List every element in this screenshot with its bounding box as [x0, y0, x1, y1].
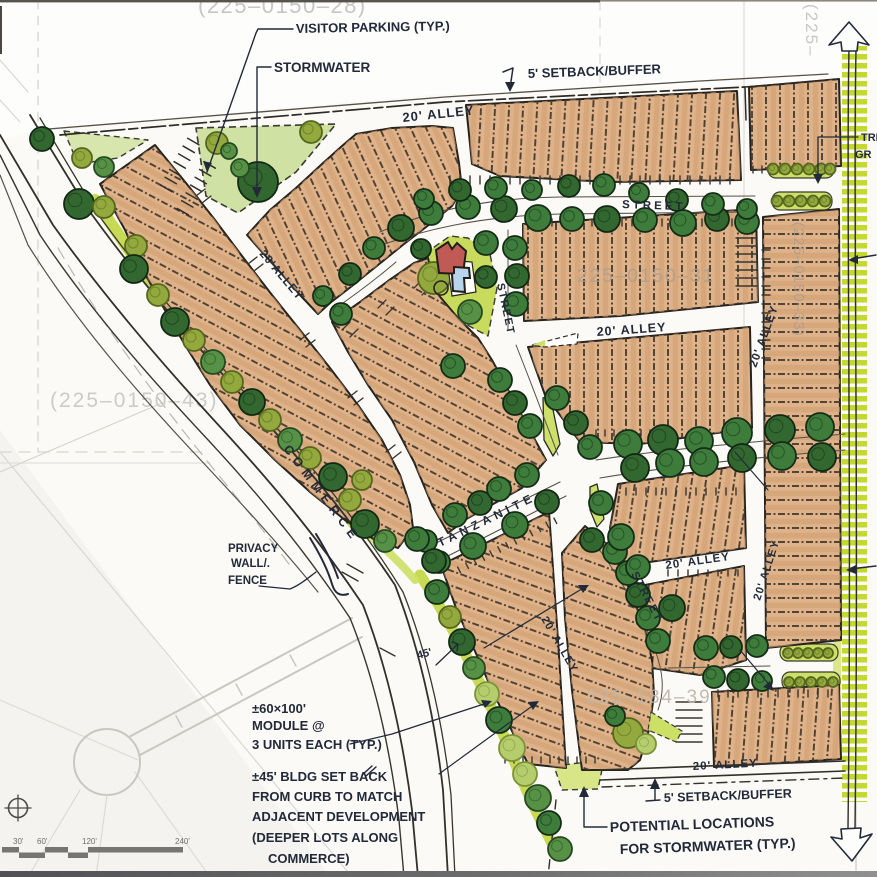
svg-text:120': 120'	[82, 837, 97, 846]
svg-text:(DEEPER LOTS ALONG: (DEEPER LOTS ALONG	[252, 830, 398, 845]
svg-text:WALL/.: WALL/.	[231, 558, 270, 570]
svg-text:(225–0150–33): (225–0150–33)	[790, 222, 807, 337]
svg-text:±45' BLDG SET BACK: ±45' BLDG SET BACK	[252, 769, 388, 784]
svg-text:(225–0150–43): (225–0150–43)	[50, 389, 218, 412]
svg-text:60': 60'	[37, 837, 48, 846]
svg-text:PRIVACY: PRIVACY	[228, 543, 279, 555]
svg-text:225–0150–31: 225–0150–31	[577, 266, 715, 287]
svg-text:COMMERCE): COMMERCE)	[268, 851, 350, 866]
svg-text:TRE: TRE	[861, 132, 877, 144]
svg-text:±60×100': ±60×100'	[252, 701, 306, 716]
svg-text:FENCE: FENCE	[228, 575, 267, 587]
svg-text:STORMWATER: STORMWATER	[274, 60, 370, 75]
svg-text:GR: GR	[855, 149, 872, 161]
svg-text:STREET: STREET	[622, 199, 686, 213]
svg-text:3 UNITS EACH (TYP.): 3 UNITS EACH (TYP.)	[252, 737, 382, 752]
svg-text:225–184–39: 225–184–39	[586, 687, 712, 708]
svg-text:240': 240'	[175, 837, 190, 846]
svg-text:VISITOR PARKING (TYP.): VISITOR PARKING (TYP.)	[296, 18, 450, 36]
svg-text:30': 30'	[13, 837, 24, 846]
svg-text:MODULE @: MODULE @	[252, 718, 325, 733]
svg-text:FROM CURB TO MATCH: FROM CURB TO MATCH	[252, 789, 402, 804]
svg-text:ADJACENT DEVELOPMENT: ADJACENT DEVELOPMENT	[252, 809, 425, 824]
svg-text:(225–: (225–	[802, 4, 821, 57]
svg-text:(225–0150–28): (225–0150–28)	[198, 0, 367, 18]
